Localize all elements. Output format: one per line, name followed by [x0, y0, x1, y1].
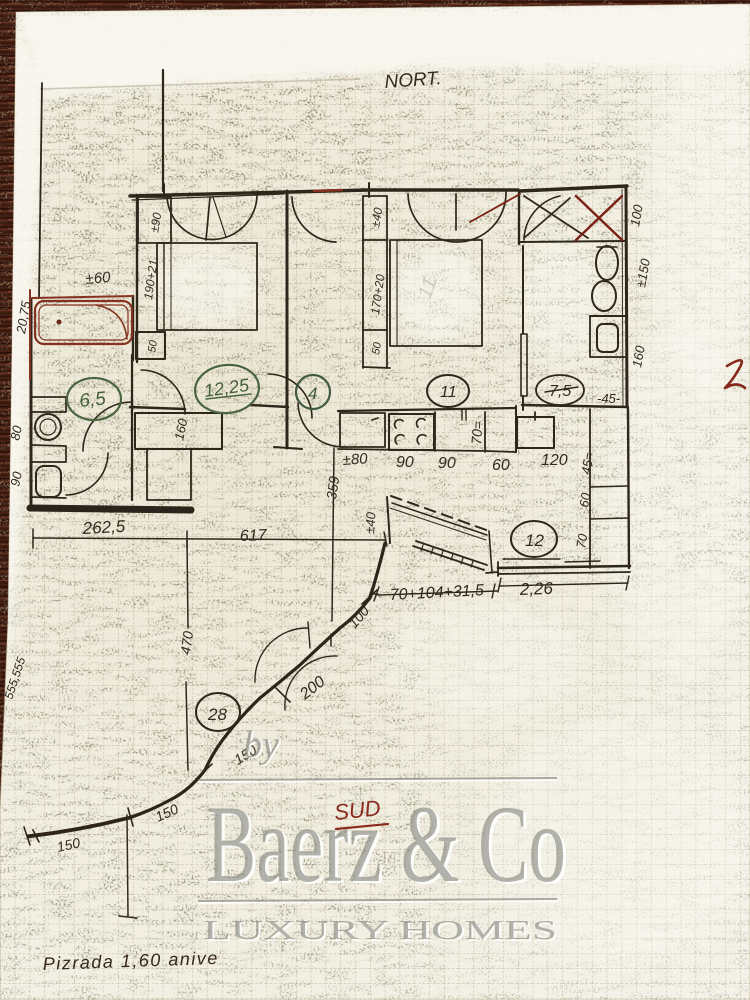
- svg-text:LUXURY HOMES: LUXURY HOMES: [203, 915, 557, 945]
- svg-text:6,5: 6,5: [78, 388, 107, 412]
- svg-text:90: 90: [438, 455, 456, 472]
- svg-text:12: 12: [525, 531, 544, 550]
- svg-text:by: by: [243, 724, 279, 766]
- svg-text:4: 4: [308, 384, 317, 403]
- svg-text:617: 617: [240, 527, 268, 545]
- svg-text:70=: 70=: [468, 420, 486, 445]
- svg-text:11: 11: [440, 384, 457, 401]
- svg-text:-45-: -45-: [597, 391, 621, 406]
- svg-text:NORT.: NORT.: [384, 68, 442, 93]
- svg-text:±60: ±60: [85, 269, 112, 288]
- svg-text:60: 60: [492, 457, 510, 474]
- svg-text:Baerz & Co: Baerz & Co: [206, 783, 566, 905]
- svg-text:90: 90: [396, 454, 414, 471]
- svg-text:±80: ±80: [342, 450, 369, 469]
- svg-text:470: 470: [177, 630, 196, 656]
- svg-text:120: 120: [541, 452, 568, 469]
- svg-text:7,5: 7,5: [549, 383, 571, 400]
- svg-text:262,5: 262,5: [81, 517, 126, 538]
- svg-text:2,26: 2,26: [518, 579, 553, 599]
- svg-text:28: 28: [207, 705, 227, 724]
- svg-text:±40: ±40: [362, 511, 379, 534]
- svg-text:359: 359: [323, 475, 342, 501]
